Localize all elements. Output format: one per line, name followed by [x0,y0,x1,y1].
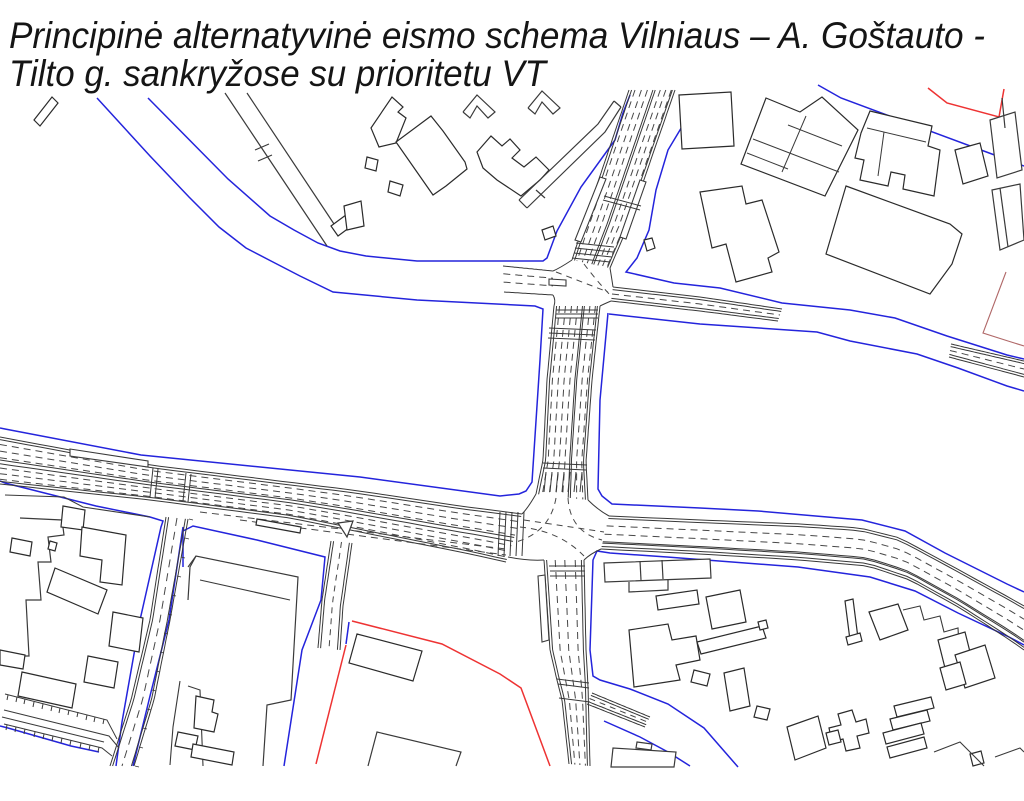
svg-text:Principinė alternatyvinė eismo: Principinė alternatyvinė eismo schema Vi… [9,15,985,56]
svg-text:Tilto g. sankryžose su priorit: Tilto g. sankryžose su prioritetu VT [9,53,548,94]
